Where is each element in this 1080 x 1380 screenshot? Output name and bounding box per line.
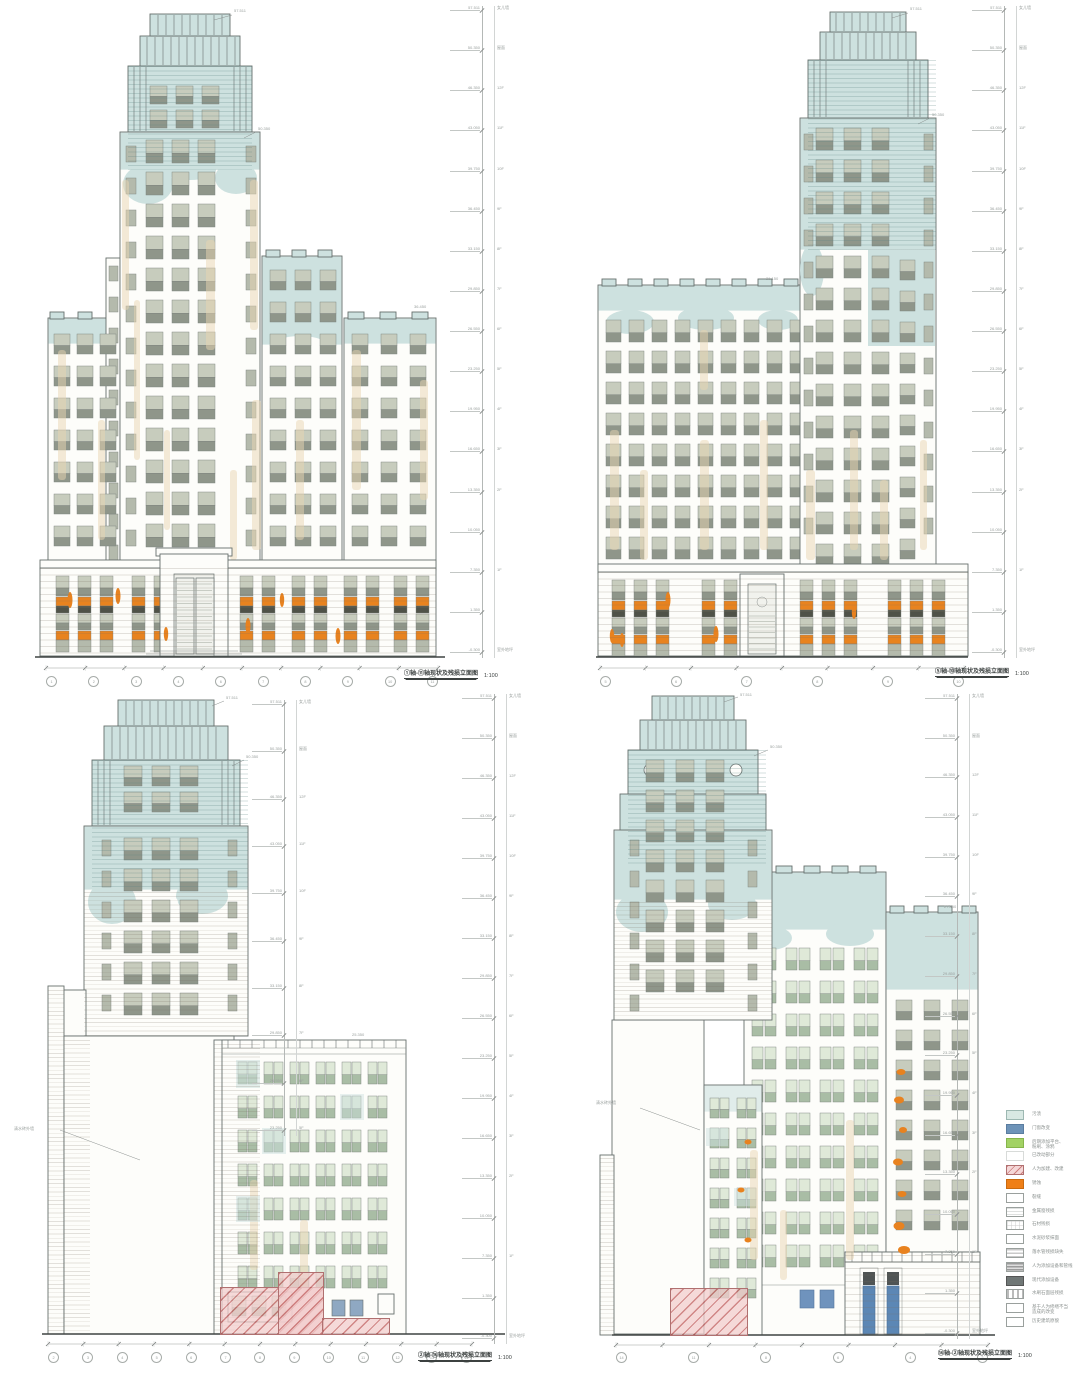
dark-band (132, 606, 145, 613)
elevation-value: 57.511 (252, 699, 282, 705)
window-spandrel (799, 961, 810, 970)
window-spandrel (720, 1200, 729, 1208)
floor-tag: 6F (509, 1013, 514, 1018)
window-pane (326, 1232, 335, 1245)
legend-item: 门窗改变 (1006, 1124, 1078, 1138)
window-pane (748, 840, 757, 856)
axis-bubble: 4 (173, 676, 184, 687)
floor-tag: 12F (1019, 85, 1026, 90)
floor-tag: 3F (497, 446, 502, 451)
floor-tag: 6F (497, 326, 502, 331)
window-spandrel (767, 488, 782, 497)
floor-tag: 10F (299, 888, 306, 893)
floor-tag: 5F (299, 1125, 304, 1130)
elevation-value: 50.350 (450, 45, 480, 51)
window-spandrel (295, 378, 311, 386)
window-pane (844, 384, 861, 397)
floor-tag: 女儿墙 (972, 693, 984, 699)
axis-grid-row-2: 5678910 (600, 676, 964, 687)
window-pane (867, 1113, 878, 1126)
window-spandrel (900, 520, 915, 528)
dark-band (656, 610, 669, 617)
window-pane (765, 1146, 776, 1159)
elevation-value: 7.350 (450, 567, 480, 573)
base-window (366, 623, 379, 630)
legend-item: 水泥砂浆抹面 (1006, 1234, 1078, 1248)
window-pane (378, 1232, 387, 1245)
floor-tag: 2F (972, 1169, 977, 1174)
window-spandrel (124, 851, 142, 860)
window-pane (652, 320, 667, 333)
window-pane (675, 537, 690, 550)
elevation-value: 33.150 (450, 246, 480, 252)
window-spandrel (765, 1225, 776, 1234)
window-spandrel (767, 395, 782, 404)
base-window (634, 644, 647, 656)
floor-tag: 8F (972, 931, 977, 936)
rust-band (910, 601, 923, 610)
window-spandrel (368, 1143, 377, 1152)
window-pane (816, 128, 833, 141)
window-spandrel (786, 1093, 797, 1102)
window-spandrel (320, 346, 336, 354)
base-window (888, 627, 901, 634)
caption-scale: 1:100 (484, 673, 498, 679)
window-pane (172, 460, 189, 473)
window-spandrel (270, 314, 286, 322)
window-pane (109, 297, 118, 312)
window-spandrel (747, 1290, 756, 1298)
window-pane (326, 1164, 335, 1177)
window-spandrel (854, 1159, 865, 1168)
window-pane (804, 390, 813, 406)
window-spandrel (646, 923, 664, 932)
window-pane (646, 760, 664, 773)
window-pane (833, 1146, 844, 1159)
floor-tag: 11F (972, 812, 979, 817)
legend-item: 水刷石面层残损 (1006, 1289, 1078, 1303)
elevation-value: 43.050 (450, 125, 480, 131)
window-spandrel (710, 1230, 719, 1238)
window-pane (652, 506, 667, 519)
window-pane (747, 1098, 756, 1110)
base-window (262, 614, 275, 623)
elevation-value: 16.650 (925, 1130, 955, 1136)
base-window (416, 623, 429, 630)
window-spandrel (872, 301, 889, 310)
window-pane (900, 322, 915, 334)
window-spandrel (676, 893, 694, 902)
window-pane (799, 981, 810, 994)
window-spandrel (676, 983, 694, 992)
window-pane (706, 850, 724, 863)
window-pane (270, 398, 286, 410)
window-spandrel (737, 1170, 746, 1178)
caption-elevation-2: ⑤轴-⑩轴现状及残损立面图 1:100 (935, 666, 1029, 677)
window-pane (854, 1146, 865, 1159)
axis-bubble: 11 (688, 1352, 699, 1363)
caption-elevation-1: ①轴-⑪轴现状及残损立面图 1:100 (404, 668, 498, 679)
window-pane (786, 948, 797, 961)
window-pane (872, 448, 889, 461)
window-pane (721, 351, 736, 364)
window-pane (77, 366, 93, 378)
base-window (702, 644, 715, 656)
base-window (394, 576, 407, 588)
window-spandrel (820, 1258, 831, 1267)
window-spandrel (270, 506, 286, 514)
base-window (724, 580, 737, 592)
window-spandrel (816, 269, 833, 278)
window-pane (646, 850, 664, 863)
axis-bubble: 9 (882, 676, 893, 687)
base-window (822, 592, 835, 600)
window-spandrel (326, 1245, 335, 1254)
rust-band (366, 631, 379, 640)
window-pane (767, 320, 782, 333)
window-spandrel (172, 249, 189, 259)
window-pane (198, 428, 215, 441)
window-pane (295, 366, 311, 378)
axis-bubble: 11 (358, 1352, 369, 1363)
elevation-value: 23.250 (925, 1050, 955, 1056)
window-spandrel (295, 346, 311, 354)
floor-tag: 屋面 (972, 733, 980, 739)
base-window (100, 614, 113, 623)
floor-tag: 1F (972, 1249, 977, 1254)
window-pane (799, 948, 810, 961)
window-pane (744, 475, 759, 488)
elevation-value: 26.550 (925, 1011, 955, 1017)
window-spandrel (381, 346, 397, 354)
base-window (888, 592, 901, 600)
window-spandrel (300, 1211, 309, 1220)
window-pane (652, 475, 667, 488)
window-pane (646, 880, 664, 893)
rust-band (56, 631, 69, 640)
window-pane (172, 396, 189, 409)
window-spandrel (799, 1027, 810, 1036)
window-spandrel (54, 506, 70, 514)
floor-tag: 4F (972, 1090, 977, 1095)
window-spandrel (900, 365, 915, 373)
window-pane (176, 86, 193, 96)
window-spandrel (816, 333, 833, 342)
window-pane (804, 454, 813, 470)
window-spandrel (676, 923, 694, 932)
window-pane (737, 1218, 746, 1230)
window-pane (896, 1210, 912, 1222)
dark-band (240, 606, 253, 613)
window-spandrel (854, 1060, 865, 1069)
window-pane (720, 1098, 729, 1110)
window-pane (924, 134, 933, 150)
window-spandrel (629, 395, 644, 404)
window-spandrel (816, 237, 833, 246)
window-spandrel (872, 429, 889, 438)
window-pane (368, 1198, 377, 1211)
window-spandrel (316, 1075, 325, 1084)
rust-band (56, 597, 69, 606)
window-pane (202, 86, 219, 96)
window-pane (272, 1296, 286, 1308)
window-pane (872, 288, 889, 301)
window-pane (844, 416, 861, 429)
window-pane (646, 820, 664, 833)
dark-band (416, 606, 429, 613)
window-spandrel (646, 953, 664, 962)
window-pane (300, 1198, 309, 1211)
parapet-notch (628, 279, 642, 286)
window-spandrel (867, 1093, 878, 1102)
wall-note-label: 清水砖外墙 (14, 1126, 34, 1132)
window-pane (102, 840, 111, 856)
window-pane (228, 995, 237, 1011)
window-pane (872, 320, 889, 333)
dark-band (932, 610, 945, 617)
window-spandrel (198, 409, 215, 419)
window-spandrel (172, 217, 189, 227)
legend-swatch-darkgray (1006, 1276, 1024, 1286)
window-pane (767, 475, 782, 488)
dark-band (56, 606, 69, 613)
window-pane (320, 334, 336, 346)
base-window (394, 623, 407, 630)
window-spandrel (180, 1006, 198, 1015)
window-spandrel (290, 1211, 299, 1220)
window-pane (854, 1047, 865, 1060)
window-pane (744, 444, 759, 457)
window-pane (124, 900, 142, 913)
legend-label: 门窗改变 (1032, 1124, 1050, 1130)
window-pane (316, 1232, 325, 1245)
rust-band (292, 597, 305, 606)
window-pane (126, 146, 136, 162)
window-pane (799, 1080, 810, 1093)
legend-label: 后期添加平台、 粉刷、涂鸦 (1032, 1138, 1064, 1149)
legend-swatch-green (1006, 1138, 1024, 1148)
elevation-value: 1.350 (925, 1288, 955, 1294)
window-pane (381, 526, 397, 538)
dark-band (100, 606, 113, 613)
rust-band (262, 631, 275, 640)
window-spandrel (767, 457, 782, 466)
window-spandrel (172, 185, 189, 195)
window-pane (867, 981, 878, 994)
dark-band (292, 606, 305, 613)
base-window (56, 614, 69, 623)
window-pane (744, 320, 759, 333)
window-spandrel (820, 1225, 831, 1234)
window-spandrel (854, 1225, 865, 1234)
window-pane (799, 1047, 810, 1060)
window-pane (180, 962, 198, 975)
crown-oculus (730, 764, 742, 776)
window-spandrel (264, 1211, 273, 1220)
window-pane (381, 462, 397, 474)
window-spandrel (274, 1279, 283, 1288)
window-pane (238, 1266, 247, 1279)
axis-grid-row-3: 234567891011121314 (48, 1352, 472, 1363)
window-pane (378, 1096, 387, 1109)
window-spandrel (290, 1177, 299, 1186)
dark-band (314, 606, 327, 613)
window-pane (720, 1188, 729, 1200)
window-pane (924, 262, 933, 278)
base-window (724, 618, 737, 627)
window-pane (124, 869, 142, 882)
dark-band (394, 606, 407, 613)
window-spandrel (816, 397, 833, 406)
floor-tag: 4F (1019, 406, 1024, 411)
window-spandrel (833, 1093, 844, 1102)
window-spandrel (816, 365, 833, 374)
elevation-value: 16.650 (450, 446, 480, 452)
window-pane (381, 398, 397, 410)
elevation-value: 23.250 (252, 1125, 282, 1131)
window-spandrel (786, 1192, 797, 1201)
window-pane (202, 110, 219, 120)
window-spandrel (900, 334, 915, 342)
window-pane (295, 398, 311, 410)
caption-title: ⑭轴-②轴现状及残损立面图 (938, 1348, 1012, 1359)
window-pane (924, 166, 933, 182)
window-spandrel (290, 1143, 299, 1152)
window-pane (316, 1130, 325, 1143)
rust-band (292, 631, 305, 640)
window-spandrel (320, 282, 336, 290)
peak-elevation-label: 57.511 (740, 692, 752, 697)
base-window (78, 614, 91, 623)
window-spandrel (198, 377, 215, 387)
window-spandrel (820, 1060, 831, 1069)
base-window (888, 644, 901, 656)
window-spandrel (124, 882, 142, 891)
base-window (932, 592, 945, 600)
base-window (932, 580, 945, 592)
legend-swatch-grid (1006, 1220, 1024, 1230)
legend-label: 金属窗残损 (1032, 1207, 1055, 1213)
elevation-value: 29.850 (972, 286, 1002, 292)
legend-item: 现代添加设备 (1006, 1276, 1078, 1290)
window-spandrel (744, 550, 759, 559)
window-spandrel (820, 1093, 831, 1102)
window-spandrel (124, 778, 142, 786)
legend-item: 落水管残损缺失 (1006, 1248, 1078, 1262)
base-window (366, 614, 379, 623)
window-pane (676, 850, 694, 863)
window-spandrel (316, 1177, 325, 1186)
window-pane (900, 415, 915, 427)
elevation-value: 57.511 (925, 693, 955, 699)
window-pane (867, 948, 878, 961)
window-pane (152, 962, 170, 975)
elevation-value: 43.050 (252, 841, 282, 847)
window-pane (867, 1179, 878, 1192)
base-window (78, 623, 91, 630)
rust-band (634, 635, 647, 644)
window-spandrel (238, 1109, 247, 1118)
window-pane (676, 910, 694, 923)
window-spandrel (820, 1192, 831, 1201)
legend-swatch-orange (1006, 1179, 1024, 1189)
window-pane (676, 940, 694, 953)
base-window (702, 627, 715, 634)
elevation-value: 39.750 (925, 852, 955, 858)
window-pane (630, 902, 639, 918)
window-spandrel (765, 1192, 776, 1201)
elevation-value: 7.350 (972, 567, 1002, 573)
window-spandrel (737, 1140, 746, 1148)
window-spandrel (675, 550, 690, 559)
base-window (702, 580, 715, 592)
elevation-value: 33.150 (252, 983, 282, 989)
window-pane (629, 351, 644, 364)
window-pane (629, 444, 644, 457)
window-spandrel (146, 505, 163, 515)
window-pane (844, 128, 861, 141)
window-spandrel (146, 537, 163, 547)
window-spandrel (844, 269, 861, 278)
legend-label: 石材残损 (1032, 1220, 1050, 1226)
window-spandrel (744, 457, 759, 466)
window-spandrel (652, 488, 667, 497)
window-spandrel (290, 1245, 299, 1254)
base-window (344, 640, 357, 652)
window-pane (102, 871, 111, 887)
window-spandrel (176, 120, 193, 128)
window-pane (652, 413, 667, 426)
window-pane (765, 1080, 776, 1093)
window-spandrel (710, 1170, 719, 1178)
window-spandrel (867, 1060, 878, 1069)
window-pane (124, 962, 142, 975)
caption-scale: 1:100 (1018, 1353, 1032, 1359)
window-pane (180, 869, 198, 882)
window-pane (316, 1164, 325, 1177)
setback-elevation-label: 50.350 (246, 754, 258, 759)
caption-title: ②轴-⑭轴现状及残损立面图 (418, 1350, 492, 1361)
window-spandrel (146, 185, 163, 195)
window-pane (198, 524, 215, 537)
window-pane (675, 506, 690, 519)
window-pane (816, 288, 833, 301)
window-spandrel (799, 1258, 810, 1267)
window-pane (816, 480, 833, 493)
window-pane (844, 224, 861, 237)
window-pane (896, 1030, 912, 1042)
elevation-value: 50.350 (462, 733, 492, 739)
window-pane (721, 382, 736, 395)
elevation-value: 19.950 (450, 406, 480, 412)
window-pane (100, 366, 116, 378)
window-spandrel (844, 301, 861, 310)
window-spandrel (721, 519, 736, 528)
window-pane (844, 320, 861, 333)
elevation-value: 13.350 (972, 487, 1002, 493)
parapet-notch (860, 866, 876, 873)
window-pane (320, 270, 336, 282)
window-pane (172, 268, 189, 281)
window-pane (342, 1232, 351, 1245)
base-window (844, 644, 857, 656)
window-spandrel (872, 397, 889, 406)
elevation-value: 36.450 (972, 206, 1002, 212)
window-pane (146, 332, 163, 345)
window-pane (675, 413, 690, 426)
floor-tag: 9F (299, 936, 304, 941)
base-window (800, 592, 813, 600)
